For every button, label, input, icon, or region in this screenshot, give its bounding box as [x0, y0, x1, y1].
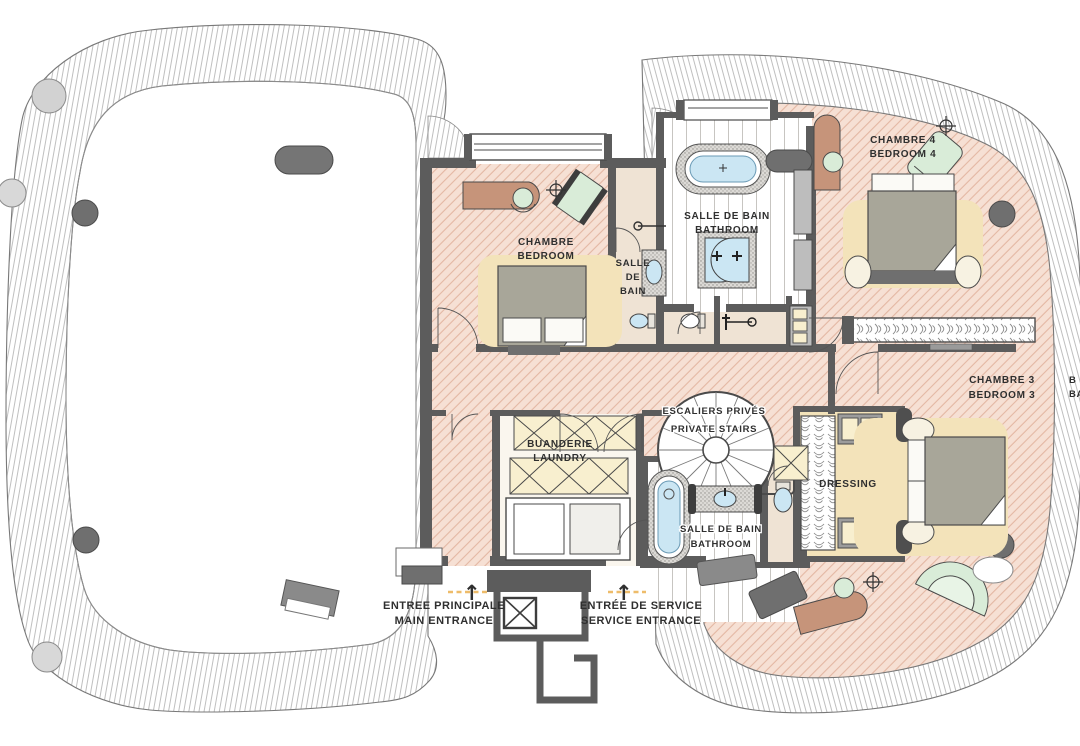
- ensuite-label-3: BAIN: [620, 286, 646, 297]
- service-stair-walls: [540, 640, 594, 700]
- master-bath-label-fr: SALLE DE BAIN: [684, 211, 770, 222]
- elevator-icon: [504, 598, 536, 628]
- main-entrance-label-en: MAIN ENTRANCE: [395, 615, 494, 627]
- service-entrance-label-fr: ENTRÉE DE SERVICE: [580, 599, 703, 612]
- bedroom-left-label-en: BEDROOM: [517, 251, 574, 262]
- planter-icon: [32, 79, 66, 113]
- bath-bay-window: [676, 100, 778, 120]
- balcony-label-clipped-1: B: [1069, 375, 1077, 386]
- bedroom3-label-fr: CHAMBRE 3: [969, 375, 1035, 386]
- core-top-wall: [487, 570, 591, 592]
- tall-cabinet-icon: [794, 240, 812, 290]
- main-entrance-label-fr: ENTREE PRINCIPALE: [383, 600, 505, 612]
- bedroom3-label-en: BEDROOM 3: [969, 390, 1036, 401]
- stool-icon: [955, 256, 981, 288]
- terrace-stoop: [280, 580, 339, 621]
- tall-cabinet-icon: [794, 170, 812, 234]
- column-icon: [989, 201, 1015, 227]
- bedroom4-label-en: BEDROOM 4: [870, 149, 937, 160]
- bedroom-left-label-fr: CHAMBRE: [518, 237, 574, 248]
- floor-plan-page: CHAMBRE BEDROOM SALLE DE BAIN SALLE DE B…: [0, 0, 1080, 746]
- toilet-icon: [774, 482, 792, 512]
- toilet-icon: [681, 314, 705, 328]
- left-terrace-band: [6, 25, 446, 712]
- rug-oval: [973, 557, 1013, 583]
- left-terrace-wing: [0, 25, 446, 712]
- desk-chair-icon: [513, 188, 533, 208]
- column-icon: [72, 200, 98, 226]
- bed-duvet: [868, 191, 956, 271]
- vanity-icon: [688, 484, 762, 514]
- desk-chair-icon: [823, 152, 843, 172]
- stairs-label-en: PRIVATE STAIRS: [671, 424, 757, 435]
- stool-icon: [845, 256, 871, 288]
- planter-icon: [0, 179, 26, 207]
- guest-bath-label-fr: SALLE DE BAIN: [680, 524, 762, 535]
- balcony-label-clipped-2: BA: [1069, 389, 1080, 400]
- bath-bench-icon: [766, 150, 812, 172]
- entry-vestibule: [396, 548, 442, 584]
- ensuite-label-1: SALLE: [616, 258, 651, 269]
- column-icon: [73, 527, 99, 553]
- stairs-label-fr: ESCALIERS PRIVÉS: [662, 406, 765, 417]
- laundry-label-fr: BUANDERIE: [527, 439, 593, 450]
- pillow-icon: [545, 318, 583, 342]
- service-entrance-label-en: SERVICE ENTRANCE: [581, 615, 701, 627]
- spa-bench-icon: [275, 146, 333, 174]
- bathtub-basin: [658, 481, 680, 553]
- left-terrace-inner-edge: [66, 81, 416, 653]
- laundry-label-en: LAUNDRY: [533, 453, 586, 464]
- drawer-cabinet-icon: [790, 306, 812, 346]
- ensuite-label-2: DE: [626, 272, 641, 283]
- awning-fan-icon: [428, 116, 470, 158]
- vestibule-floor: [428, 414, 498, 566]
- pillow-icon: [503, 318, 541, 342]
- laundry-furniture: [506, 416, 636, 560]
- bedroom4-label-fr: CHAMBRE 4: [870, 135, 936, 146]
- toilet-icon: [630, 314, 655, 328]
- dressing-label: DRESSING: [819, 479, 877, 490]
- desk-chair-icon: [834, 578, 854, 598]
- guest-bath-label-en: BATHROOM: [691, 539, 752, 550]
- bed-bench-icon: [508, 346, 560, 355]
- x-cabinet-icon: [774, 446, 808, 480]
- bay-window: [464, 134, 612, 160]
- master-bath-label-en: BATHROOM: [695, 225, 759, 236]
- planter-icon: [32, 642, 62, 672]
- floor-plan-drawing: CHAMBRE BEDROOM SALLE DE BAIN SALLE DE B…: [0, 0, 1080, 746]
